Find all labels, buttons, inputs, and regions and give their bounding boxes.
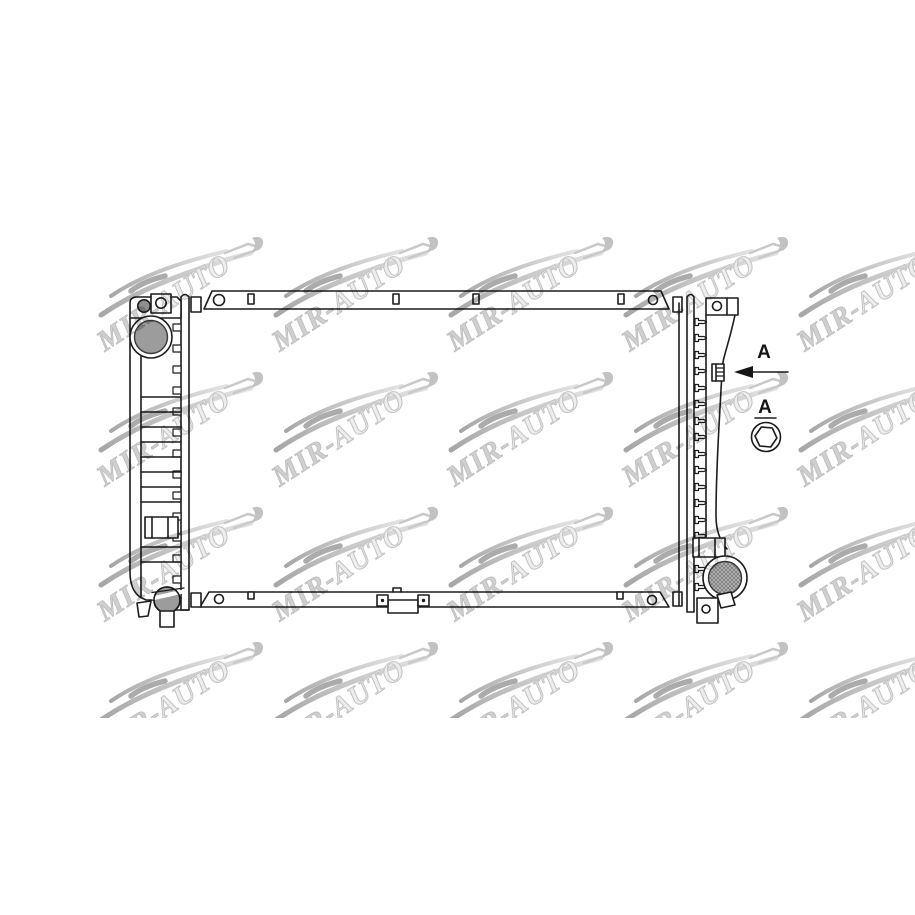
left-top-bracket [130,294,181,318]
left-foot-tab [137,601,151,617]
right-bottom-bracket [697,598,718,623]
top-rail-hole-right [649,296,658,305]
bottom-rail [200,588,669,613]
bottom-rail-hole-right [648,596,657,605]
bottom-rail-hole-left [215,595,224,604]
top-rail-slot [248,294,254,304]
top-rail-slot [473,294,479,304]
top-rail-slot [393,294,399,304]
bleed-screw [712,364,724,381]
hose-clamp [145,517,178,538]
bracket-hole [702,605,710,613]
filler-cap [130,316,172,358]
detail-label: A [758,397,772,418]
hex-plug-detail-icon [752,423,781,452]
rail-tab [673,297,682,312]
hose-clamp [693,538,725,557]
bracket-hole [156,298,166,308]
right-foot-tab [717,592,735,608]
rail-tab [673,592,682,606]
right-top-bracket [706,298,738,315]
section-annotation: A [734,342,788,378]
left-end-plate [181,295,189,611]
left-plate-teeth [173,324,181,583]
product-image-canvas: A A [0,0,915,915]
rail-tab [191,593,201,607]
arrow-label: A [757,342,771,363]
top-rail-hole-left [214,295,225,306]
outlet-pipe [160,611,174,627]
rail-tab [191,297,201,312]
top-rail [204,291,669,309]
bracket-hole [713,302,722,311]
bottom-rail-slot [248,592,254,599]
left-tank [130,294,201,627]
top-rail-slot [618,294,624,304]
drain-plug [152,587,184,613]
detail-annotation: A [752,397,781,452]
bracket-pin-circle [138,300,150,312]
section-arrow-icon [734,366,788,378]
right-tank [673,295,747,624]
radiator-line-drawing: A A [0,0,915,915]
right-end-plate [687,295,694,613]
bottom-rail-slot [617,592,623,599]
